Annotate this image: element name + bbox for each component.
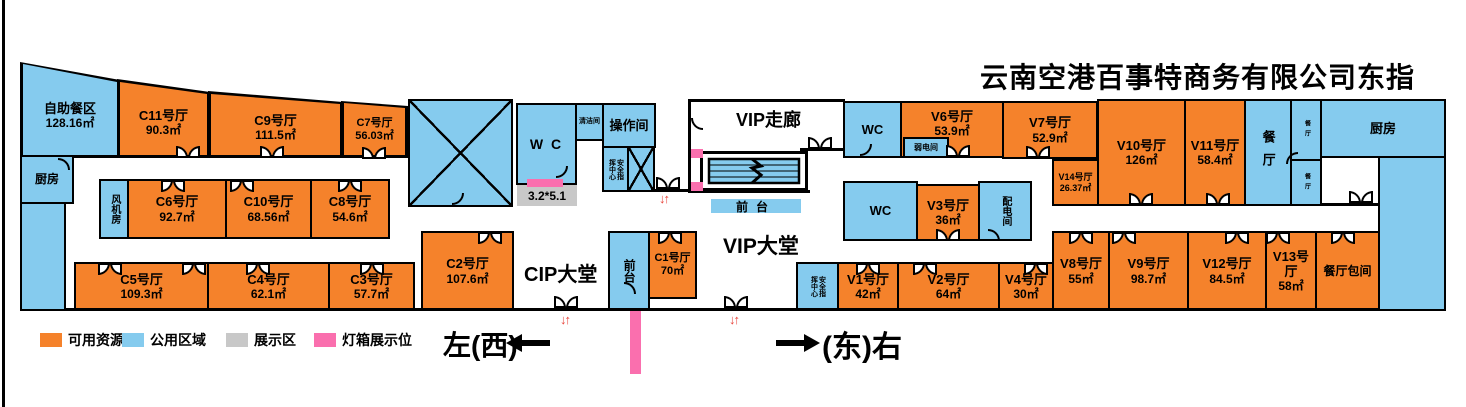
- double-door-icon: [1266, 232, 1290, 244]
- double-door-icon: [246, 263, 270, 275]
- updown-arrows-icon: ↓↑: [729, 312, 738, 327]
- room-weak-power: 弱电间: [903, 137, 949, 158]
- double-door-icon: [1331, 232, 1355, 244]
- double-door-icon: [1112, 232, 1136, 244]
- display-area: 3.2*5.1: [517, 185, 577, 206]
- room-cleaning: 清洁间: [575, 103, 604, 141]
- double-door-icon: [161, 180, 185, 192]
- double-door-icon: [1026, 146, 1050, 158]
- plan-left-border: [2, 0, 5, 407]
- vip-reception-bar: 前台: [711, 199, 801, 213]
- room-buffet: 自助餐区128.16㎡: [20, 59, 120, 158]
- room-security-top: 安全指挥中心: [602, 146, 629, 192]
- bottom-wall: [64, 308, 1380, 311]
- room-wc-mid: W C: [516, 103, 577, 185]
- legend-swatch-display: [226, 333, 248, 347]
- room-dining-small-2: 餐厅: [1290, 159, 1322, 206]
- vip-corridor-label: VIP走廊: [736, 106, 801, 132]
- room-wc-right-2: WC: [843, 181, 918, 241]
- room-security-bottom: 安全指挥中心: [796, 262, 839, 311]
- room-v7: V7号厅52.9㎡: [1002, 101, 1098, 159]
- double-door-icon: [1206, 193, 1230, 205]
- legend-item-public: 公用区域: [122, 330, 206, 350]
- escalator-icon: [700, 151, 808, 191]
- double-door-icon: [856, 263, 880, 275]
- vip-corridor-top-wall: [688, 99, 845, 102]
- lightbox-display-2: [691, 149, 703, 158]
- lightbox-display-1: [527, 179, 563, 187]
- legend-item-display: 展示区: [226, 330, 296, 350]
- legend-item-available: 可用资源: [40, 330, 124, 350]
- double-door-icon: [724, 296, 748, 308]
- room-v10: V10号厅126㎡: [1097, 99, 1186, 206]
- legend-swatch-lightbox: [314, 333, 336, 347]
- room-v11: V11号厅58.4㎡: [1184, 99, 1246, 206]
- room-v14: V14号厅26.37㎡: [1052, 159, 1099, 206]
- lightbox-display-3: [691, 182, 703, 191]
- room-wc-right-1: WC: [843, 101, 902, 158]
- west-arrow-icon: [506, 334, 550, 352]
- room-power-dist: 配电间: [978, 181, 1032, 241]
- double-door-icon: [1129, 193, 1153, 205]
- double-door-icon: [658, 232, 682, 244]
- double-door-icon: [554, 296, 578, 308]
- double-door-icon: [808, 137, 832, 149]
- double-door-icon: [1349, 191, 1373, 203]
- double-door-icon: [182, 263, 206, 275]
- door-icon: [691, 118, 703, 130]
- double-door-icon: [98, 263, 122, 275]
- cip-lobby-label: CIP大堂: [524, 258, 597, 287]
- double-door-icon: [478, 232, 502, 244]
- double-door-icon: [1225, 232, 1249, 244]
- double-door-icon: [1024, 263, 1048, 275]
- double-door-icon: [936, 229, 960, 241]
- legend-item-lightbox: 灯箱展示位: [314, 330, 412, 350]
- elevator: [627, 146, 655, 192]
- double-door-icon: [656, 177, 680, 189]
- room-fan: 风机房: [99, 179, 129, 239]
- east-direction-label: (东)右: [822, 322, 902, 366]
- room-kitchen-top: 厨房: [1320, 99, 1446, 158]
- floor-plan: 云南空港百事特商务有限公司东指廊资源图 自助餐区128.16㎡ 厨房 C11号厅…: [0, 0, 1466, 407]
- double-door-icon: [230, 180, 254, 192]
- double-door-icon: [338, 180, 362, 192]
- east-arrow-icon: [776, 334, 820, 352]
- double-door-icon: [946, 145, 970, 157]
- kitchen-corridor-wall: [1322, 203, 1380, 206]
- double-door-icon: [260, 146, 284, 158]
- double-door-icon: [176, 146, 200, 158]
- room-operation: 操作间: [602, 103, 656, 148]
- double-door-icon: [360, 263, 384, 275]
- vip-lobby-label: VIP大堂: [723, 230, 799, 260]
- room-dining: 餐厅: [1244, 99, 1292, 206]
- double-door-icon: [362, 147, 386, 159]
- legend-swatch-available: [40, 333, 62, 347]
- updown-arrows-icon: ↓↑: [560, 312, 569, 327]
- double-door-icon: [1069, 232, 1093, 244]
- vip-corridor-left-wall: [688, 99, 691, 193]
- junction-wall: [651, 189, 691, 192]
- lightbox-display-4: [630, 311, 641, 374]
- updown-arrows-icon: ↓↑: [659, 191, 668, 206]
- legend-swatch-public: [122, 333, 144, 347]
- room-kitchen-right: [1378, 156, 1446, 311]
- double-door-icon: [913, 263, 937, 275]
- stair-area: [408, 99, 513, 207]
- room-reception-cip: 前台: [608, 231, 650, 311]
